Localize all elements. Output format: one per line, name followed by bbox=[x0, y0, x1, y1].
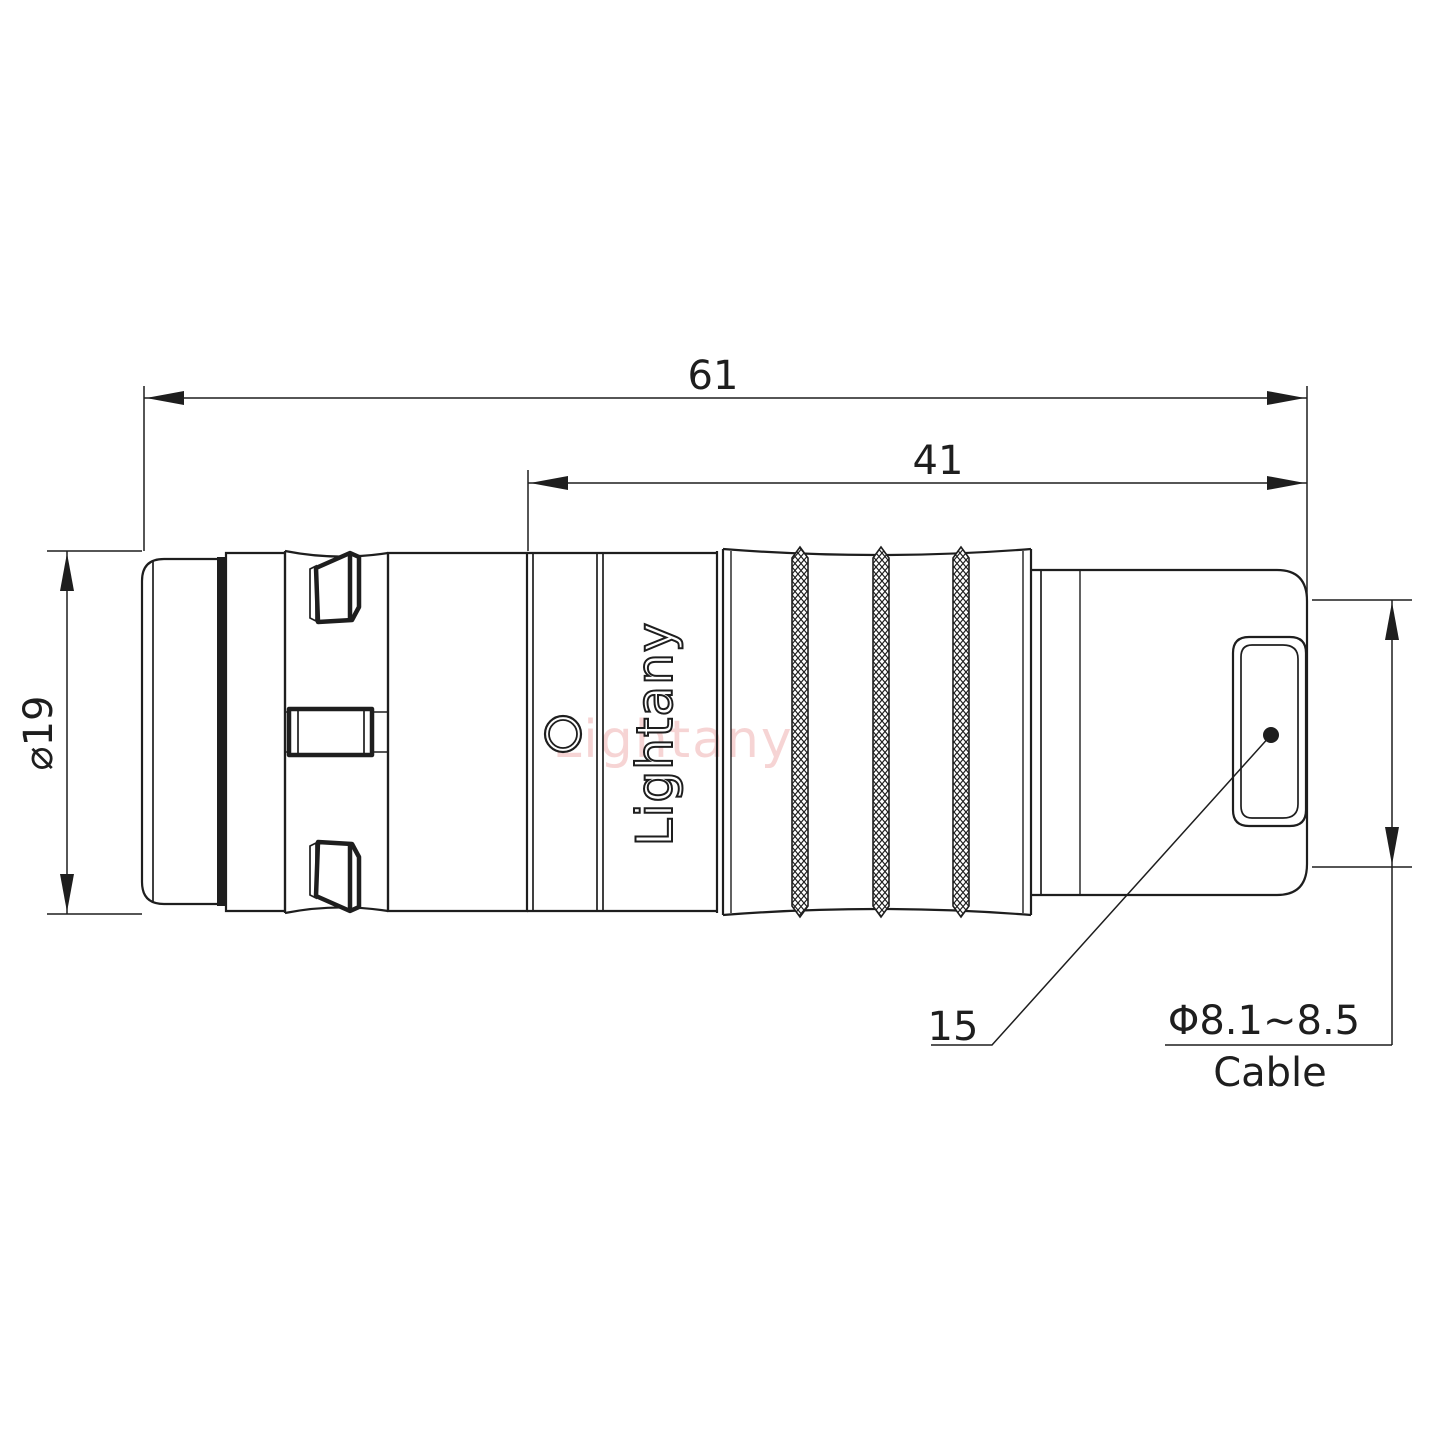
dim61-label: 61 bbox=[688, 353, 739, 399]
boot-reference-label: 15 bbox=[928, 1004, 979, 1050]
dim41-label: 41 bbox=[913, 438, 964, 484]
index-band bbox=[217, 557, 226, 906]
dimcable-arrow-bottom bbox=[1385, 827, 1399, 865]
dim41-arrow-left bbox=[530, 476, 568, 490]
dimcable-extension-lines bbox=[1312, 600, 1412, 867]
connector-technical-drawing: Lightany Lightany bbox=[0, 0, 1440, 1440]
technical-drawing-page: Lightany Lightany bbox=[0, 0, 1440, 1440]
dimension-body-diameter: ⌀19 bbox=[16, 551, 142, 914]
vent-hole-outer bbox=[545, 716, 581, 752]
knurl-band bbox=[792, 547, 808, 917]
knurl-band bbox=[953, 547, 969, 917]
bottom-latch-lug bbox=[316, 842, 359, 911]
dim41-arrow-right bbox=[1267, 476, 1305, 490]
top-latch-lug bbox=[316, 553, 359, 622]
slot-frame bbox=[289, 709, 372, 755]
dim19-label: ⌀19 bbox=[16, 696, 62, 771]
engraved-brand-text: Lightany bbox=[626, 622, 684, 847]
dim61-arrow-left bbox=[146, 391, 184, 405]
knurl-band bbox=[873, 547, 889, 917]
dimension-rear-length: 41 bbox=[528, 438, 1307, 551]
dim61-arrow-right bbox=[1267, 391, 1305, 405]
dim19-arrow-top bbox=[60, 553, 74, 591]
cable-word-label: Cable bbox=[1213, 1050, 1327, 1096]
dimcable-arrow-top bbox=[1385, 602, 1399, 640]
cable-diameter-label: Φ8.1~8.5 bbox=[1168, 998, 1360, 1044]
dim19-arrow-bottom bbox=[60, 874, 74, 912]
